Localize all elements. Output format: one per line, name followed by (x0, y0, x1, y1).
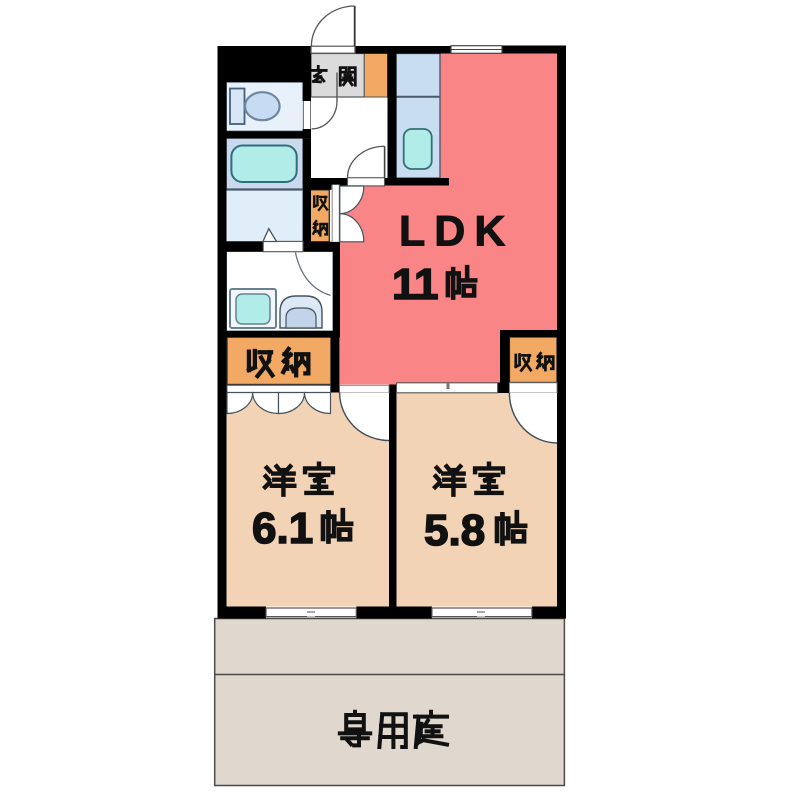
svg-text:LDK: LDK (399, 208, 514, 256)
svg-text:11: 11 (392, 260, 439, 309)
svg-text:5.8: 5.8 (424, 506, 485, 555)
svg-text:6.1: 6.1 (252, 504, 313, 553)
